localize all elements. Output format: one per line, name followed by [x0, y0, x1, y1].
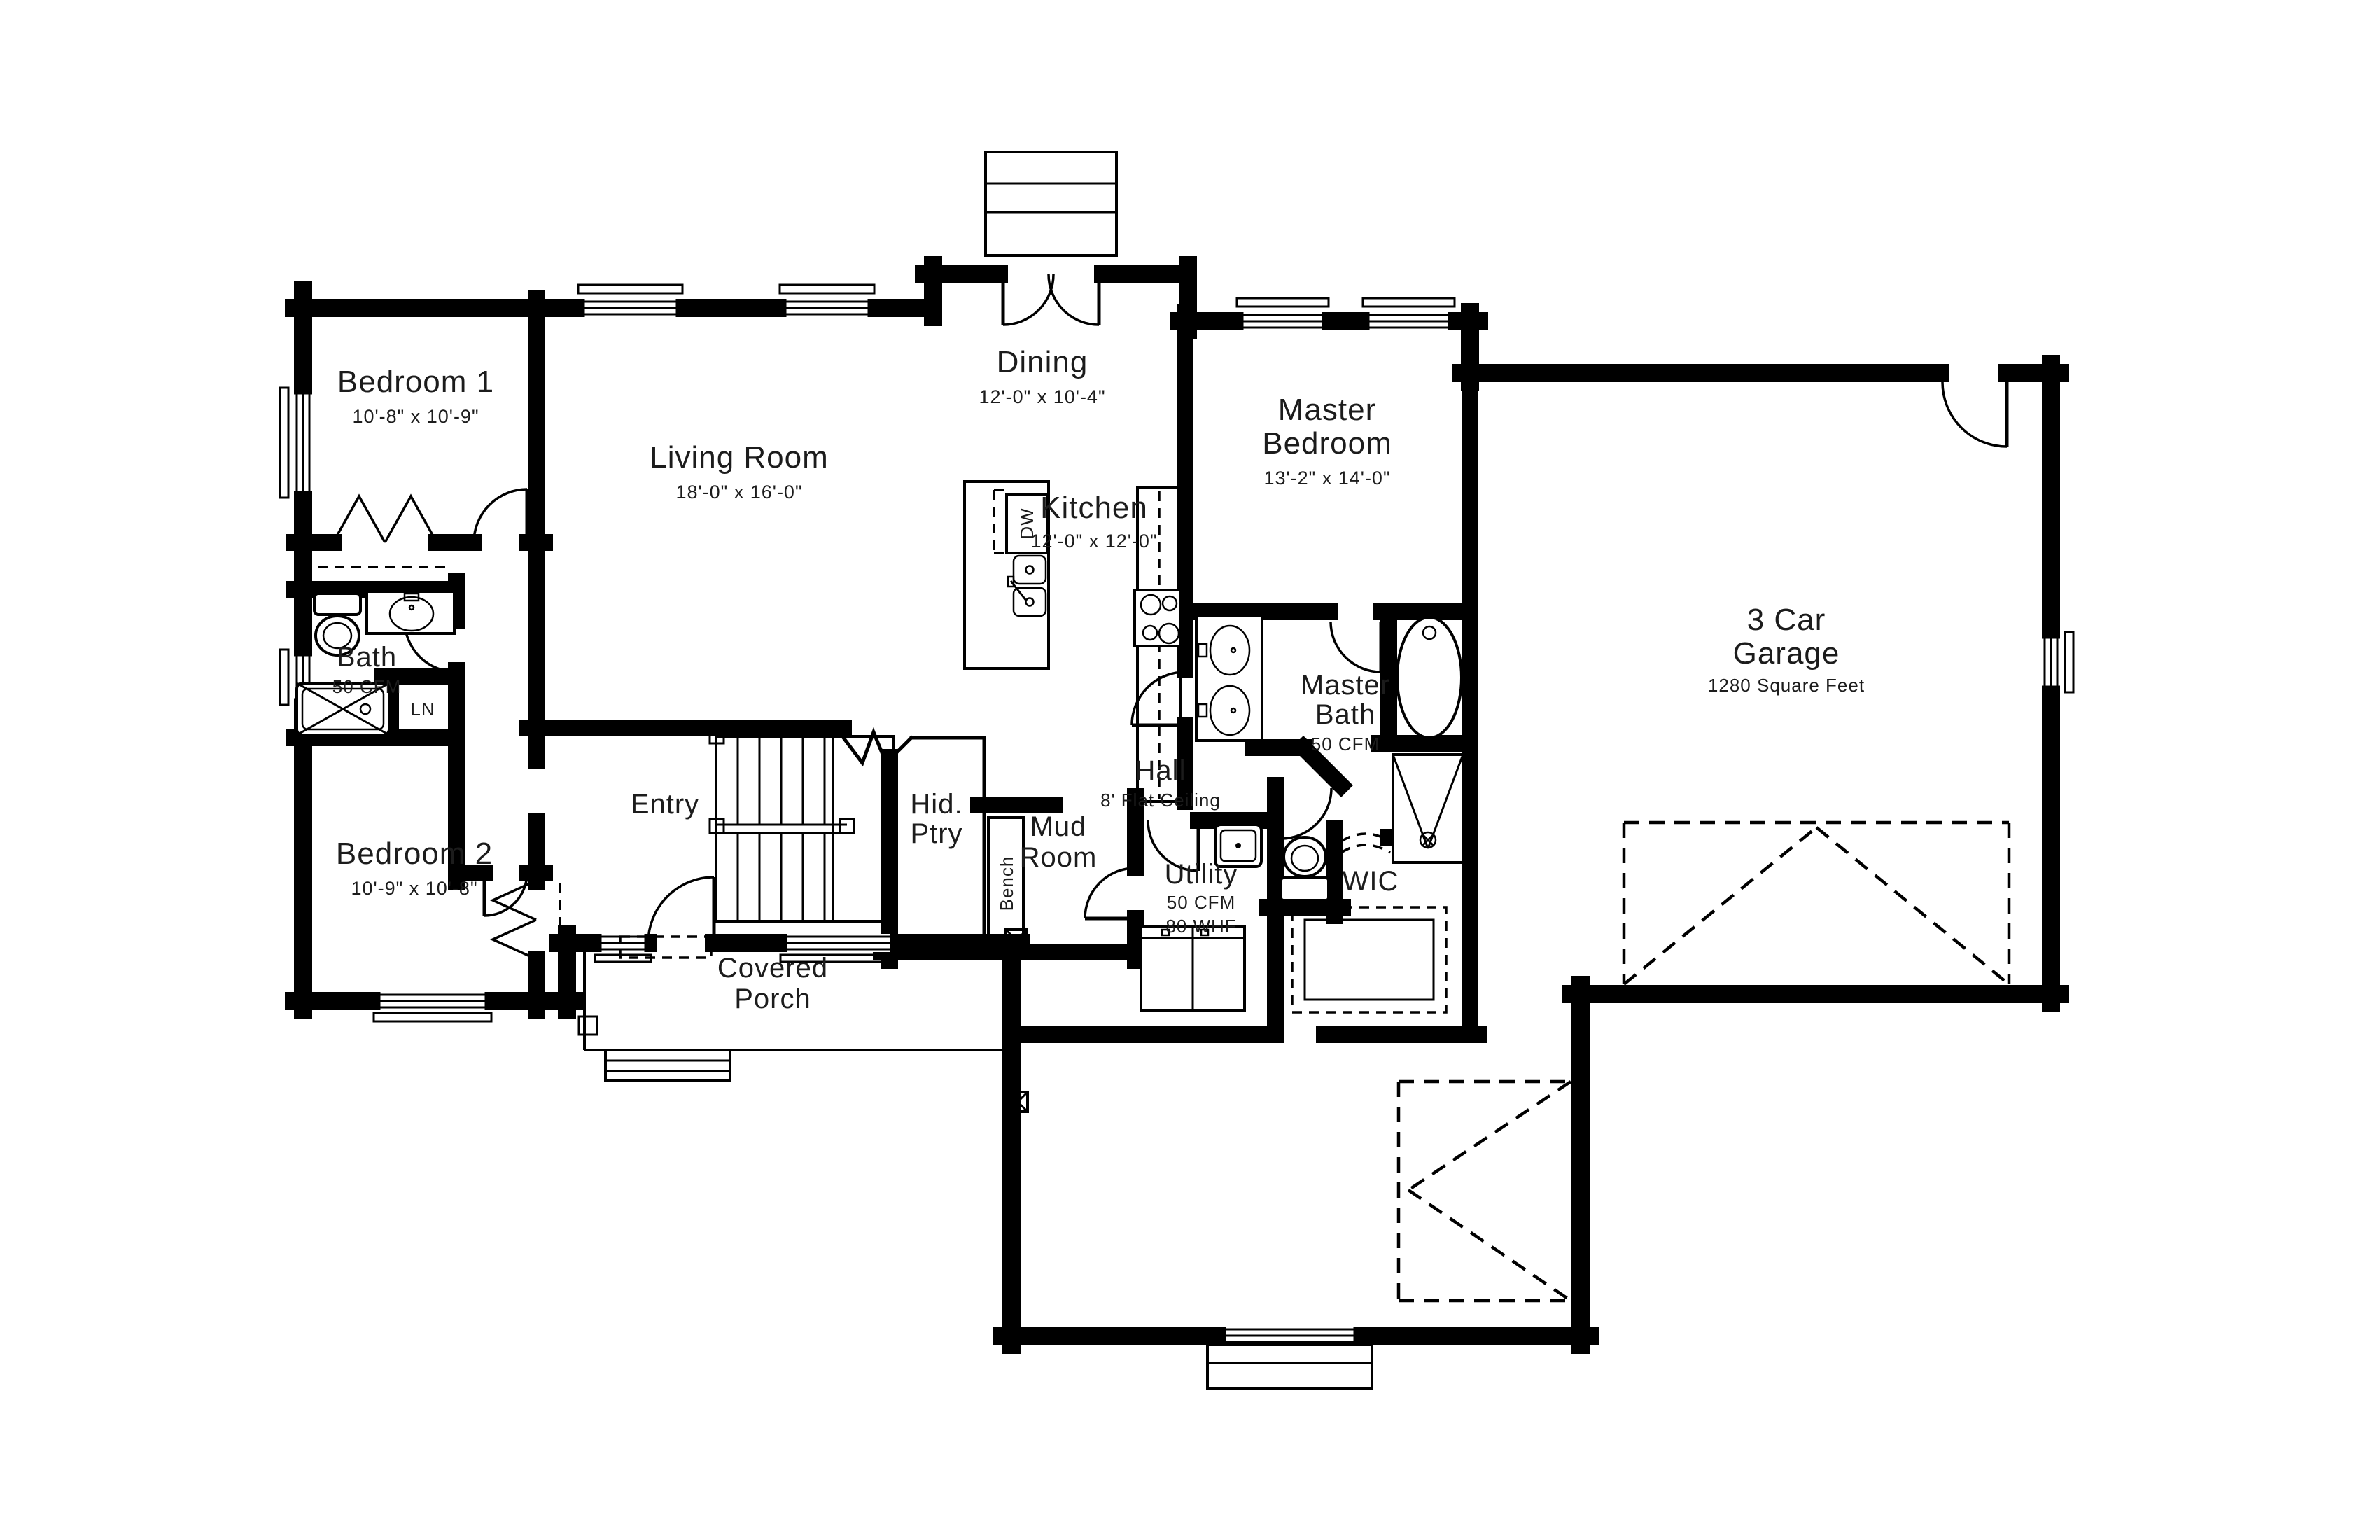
- floor-plan-canvas: DW: [0, 0, 2380, 1540]
- label-covered-porch-2: Porch: [734, 983, 811, 1014]
- label-garage-area: 1280 Square Feet: [1708, 675, 1865, 696]
- label-living-room-dims: 18'-0" x 16'-0": [675, 482, 802, 503]
- label-wic: WIC: [1343, 866, 1399, 897]
- label-dining-dims: 12'-0" x 10'-4": [979, 386, 1105, 407]
- patio-truss-outline: [1399, 1081, 1571, 1301]
- label-hidden-pantry-2: Ptry: [910, 818, 962, 849]
- label-bedroom1: Bedroom 1: [337, 365, 494, 399]
- shower-icon: [1393, 755, 1463, 862]
- floor-plan-page: DW: [0, 0, 2380, 1540]
- label-master-bath-2: Bath: [1315, 699, 1375, 730]
- range-icon: [1135, 590, 1181, 646]
- garage-truss-outline: [1624, 822, 2009, 984]
- wic-shelving: [1292, 907, 1446, 1012]
- label-mud-room-2: Room: [1020, 842, 1098, 873]
- label-bedroom1-dims: 10'-8" x 10'-9": [352, 406, 479, 427]
- soaker-tub-icon: [1397, 617, 1462, 738]
- label-kitchen-dims: 12'-0" x 12'-0": [1030, 531, 1157, 552]
- door-front-entry: [648, 877, 714, 943]
- window-patio: [1225, 1326, 1354, 1345]
- kitchen-island: DW: [965, 482, 1049, 668]
- washer-dryer-icon: [1141, 927, 1245, 1011]
- double-vanity-icon: [1196, 616, 1262, 741]
- label-hall: Hall: [1135, 755, 1186, 786]
- door-water-closet: [1281, 788, 1331, 839]
- label-kitchen: Kitchen: [1040, 491, 1148, 525]
- label-entry: Entry: [631, 789, 699, 820]
- label-master-bedroom-2: Bedroom: [1262, 426, 1392, 461]
- label-master-bedroom-1: Master: [1278, 393, 1376, 427]
- door-garage-entry: [1942, 382, 2007, 447]
- rear-stoop-dining: [986, 152, 1116, 255]
- label-master-bath-vent: 50 CFM: [1311, 734, 1380, 755]
- label-mud-room-1: Mud: [1030, 811, 1087, 842]
- bifold-closet-bedroom1: [333, 496, 437, 542]
- label-master-bath-1: Master: [1301, 670, 1390, 701]
- toilet-icon-wc: [1281, 837, 1329, 900]
- staircase: [710, 731, 894, 921]
- label-bath-vent: 50 CFM: [332, 676, 401, 697]
- window-entry-sidelite: [595, 934, 651, 962]
- label-hall-note: 8' Flat Ceiling: [1100, 790, 1221, 811]
- door-master-bath: [1331, 622, 1381, 672]
- label-bench: Bench: [996, 856, 1017, 911]
- label-bedroom2: Bedroom 2: [336, 836, 493, 871]
- label-covered-porch-1: Covered: [717, 953, 828, 983]
- window-living-1: [578, 285, 682, 317]
- label-utility-vent: 50 CFM: [1167, 892, 1235, 913]
- bifold-closet-bedroom2: [493, 881, 536, 959]
- label-bath: Bath: [337, 642, 397, 673]
- label-utility: Utility: [1165, 859, 1238, 890]
- label-bedroom2-dims: 10'-9" x 10'-8": [351, 878, 477, 899]
- window-bedroom1: [280, 388, 312, 498]
- label-hidden-pantry-1: Hid.: [910, 789, 962, 820]
- label-linen: LN: [410, 699, 435, 720]
- label-garage-2: Garage: [1733, 636, 1840, 671]
- window-master-2: [1363, 298, 1455, 330]
- label-utility-fan: 80 WHF: [1165, 916, 1236, 937]
- room-labels: Bedroom 1 10'-8" x 10'-9" Living Room 18…: [332, 345, 1865, 1014]
- label-living-room: Living Room: [650, 440, 829, 475]
- label-garage-1: 3 Car: [1747, 603, 1826, 637]
- rear-stoop-patio: [1207, 1345, 1372, 1388]
- kitchen-sink-icon: [1008, 556, 1046, 616]
- window-garage: [2042, 632, 2073, 692]
- label-master-bedroom-dims: 13'-2" x 14'-0": [1263, 468, 1390, 489]
- window-bedroom2: [374, 992, 491, 1021]
- french-doors-dining: [1003, 274, 1099, 325]
- window-master-1: [1237, 298, 1329, 330]
- utility-fixtures: [1141, 819, 1261, 1011]
- window-living-2: [780, 285, 874, 317]
- sink-icon-bath: [367, 591, 454, 633]
- label-dining: Dining: [997, 345, 1088, 379]
